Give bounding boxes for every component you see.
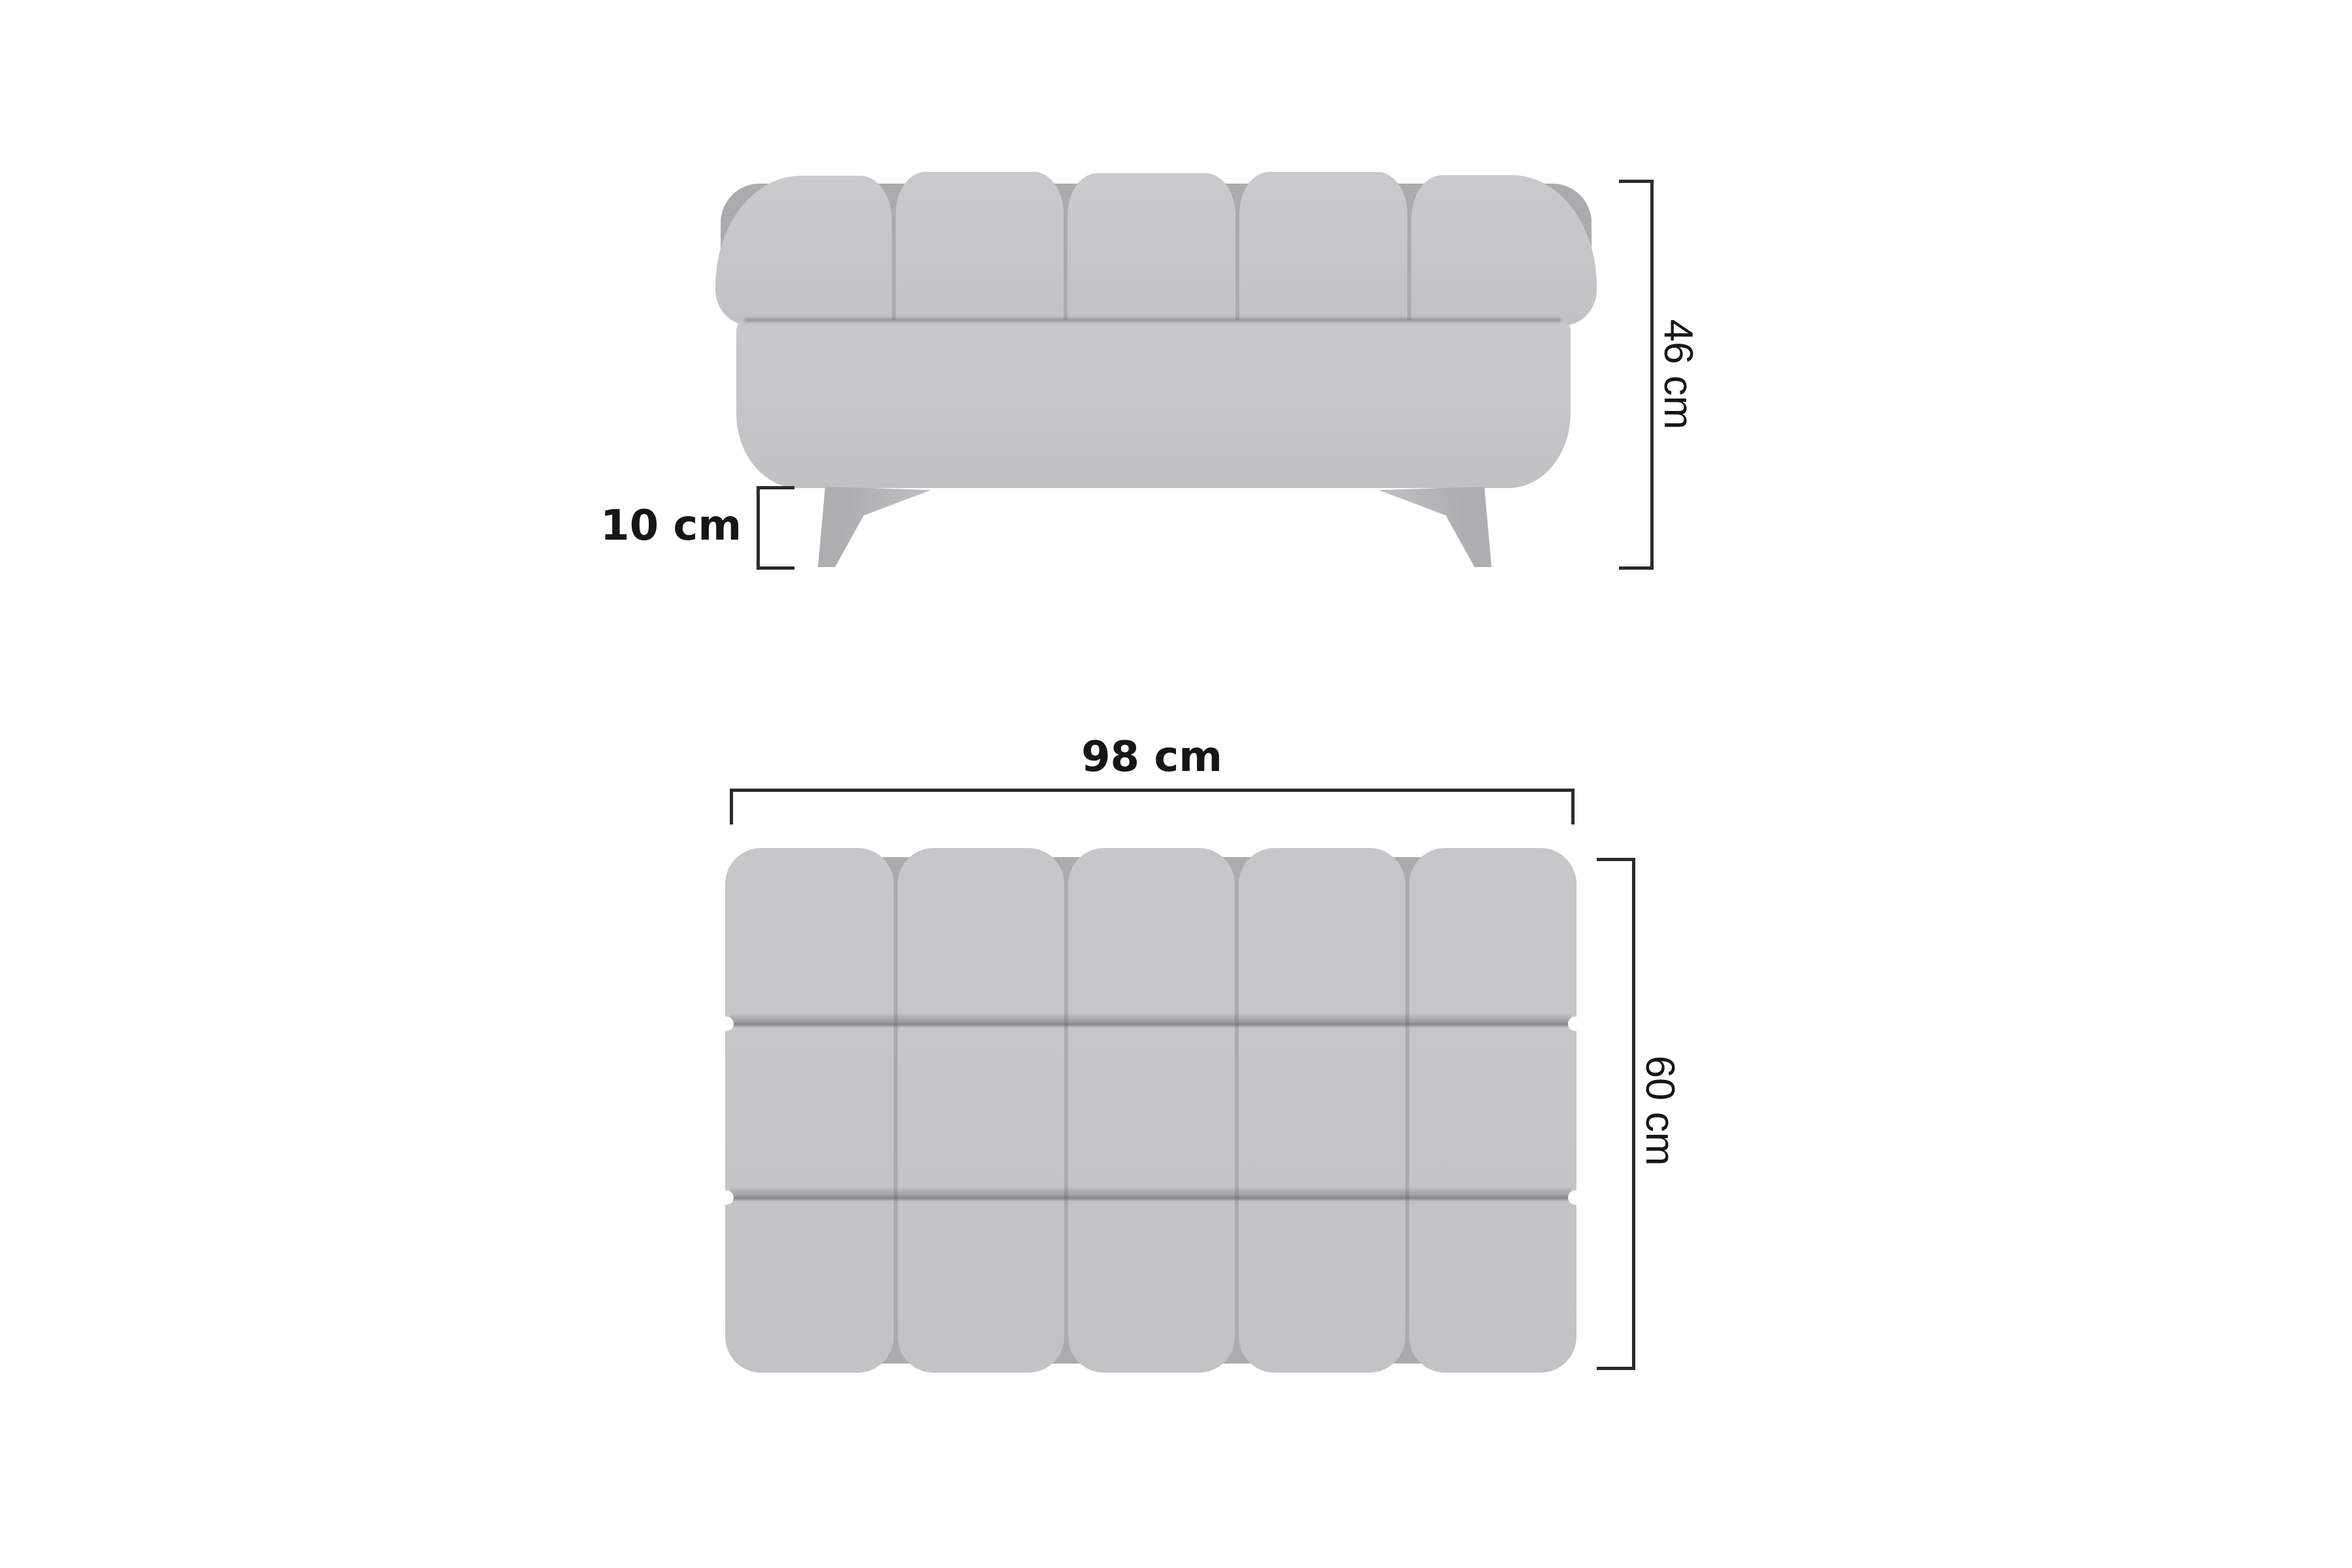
front-cushion-4 — [1239, 172, 1407, 326]
depth-dimension-label: 60 cm — [1639, 1056, 1680, 1166]
front-leg-left — [817, 486, 934, 570]
top-view-edge-notch — [719, 1190, 734, 1205]
top-view-horizontal-seam-1 — [730, 1013, 1571, 1035]
top-view-column-4 — [1239, 848, 1405, 1373]
leg-height-dimension-tick-bottom — [757, 566, 794, 570]
leg-height-dimension-line — [757, 486, 760, 570]
top-view-edge-notch — [719, 1017, 734, 1031]
top-view — [725, 848, 1576, 1373]
front-view — [715, 172, 1597, 570]
top-view-column-5 — [1409, 848, 1576, 1373]
width-dimension-tick-right — [1571, 789, 1575, 825]
top-view-column-1 — [725, 848, 894, 1373]
leg-height-dimension-tick-top — [757, 486, 794, 489]
height-dimension-tick-bottom — [1619, 566, 1654, 570]
top-view-edge-notch — [1568, 1190, 1582, 1205]
front-cushion-2 — [896, 172, 1064, 326]
height-dimension-label: 46 cm — [1658, 319, 1698, 430]
furniture-dimension-diagram: 46 cm 10 cm 98 cm 60 cm — [0, 0, 2352, 1568]
top-view-horizontal-seam-2 — [730, 1186, 1571, 1209]
front-cushion-3 — [1068, 173, 1235, 326]
front-body — [736, 320, 1571, 488]
height-dimension-line — [1650, 180, 1654, 570]
depth-dimension-tick-top — [1597, 858, 1634, 861]
depth-dimension-line — [1632, 858, 1635, 1370]
depth-dimension-tick-bottom — [1597, 1367, 1634, 1370]
leg-height-dimension-label: 10 cm — [546, 504, 742, 547]
front-body-seam — [745, 318, 1561, 322]
top-view-column-3 — [1068, 848, 1235, 1373]
width-dimension-label: 98 cm — [1021, 736, 1282, 779]
width-dimension-line — [730, 789, 1575, 792]
top-view-edge-notch — [1568, 1017, 1582, 1031]
top-view-column-2 — [898, 848, 1064, 1373]
front-leg-right — [1375, 486, 1493, 570]
height-dimension-tick-top — [1619, 180, 1654, 183]
width-dimension-tick-left — [730, 789, 733, 825]
